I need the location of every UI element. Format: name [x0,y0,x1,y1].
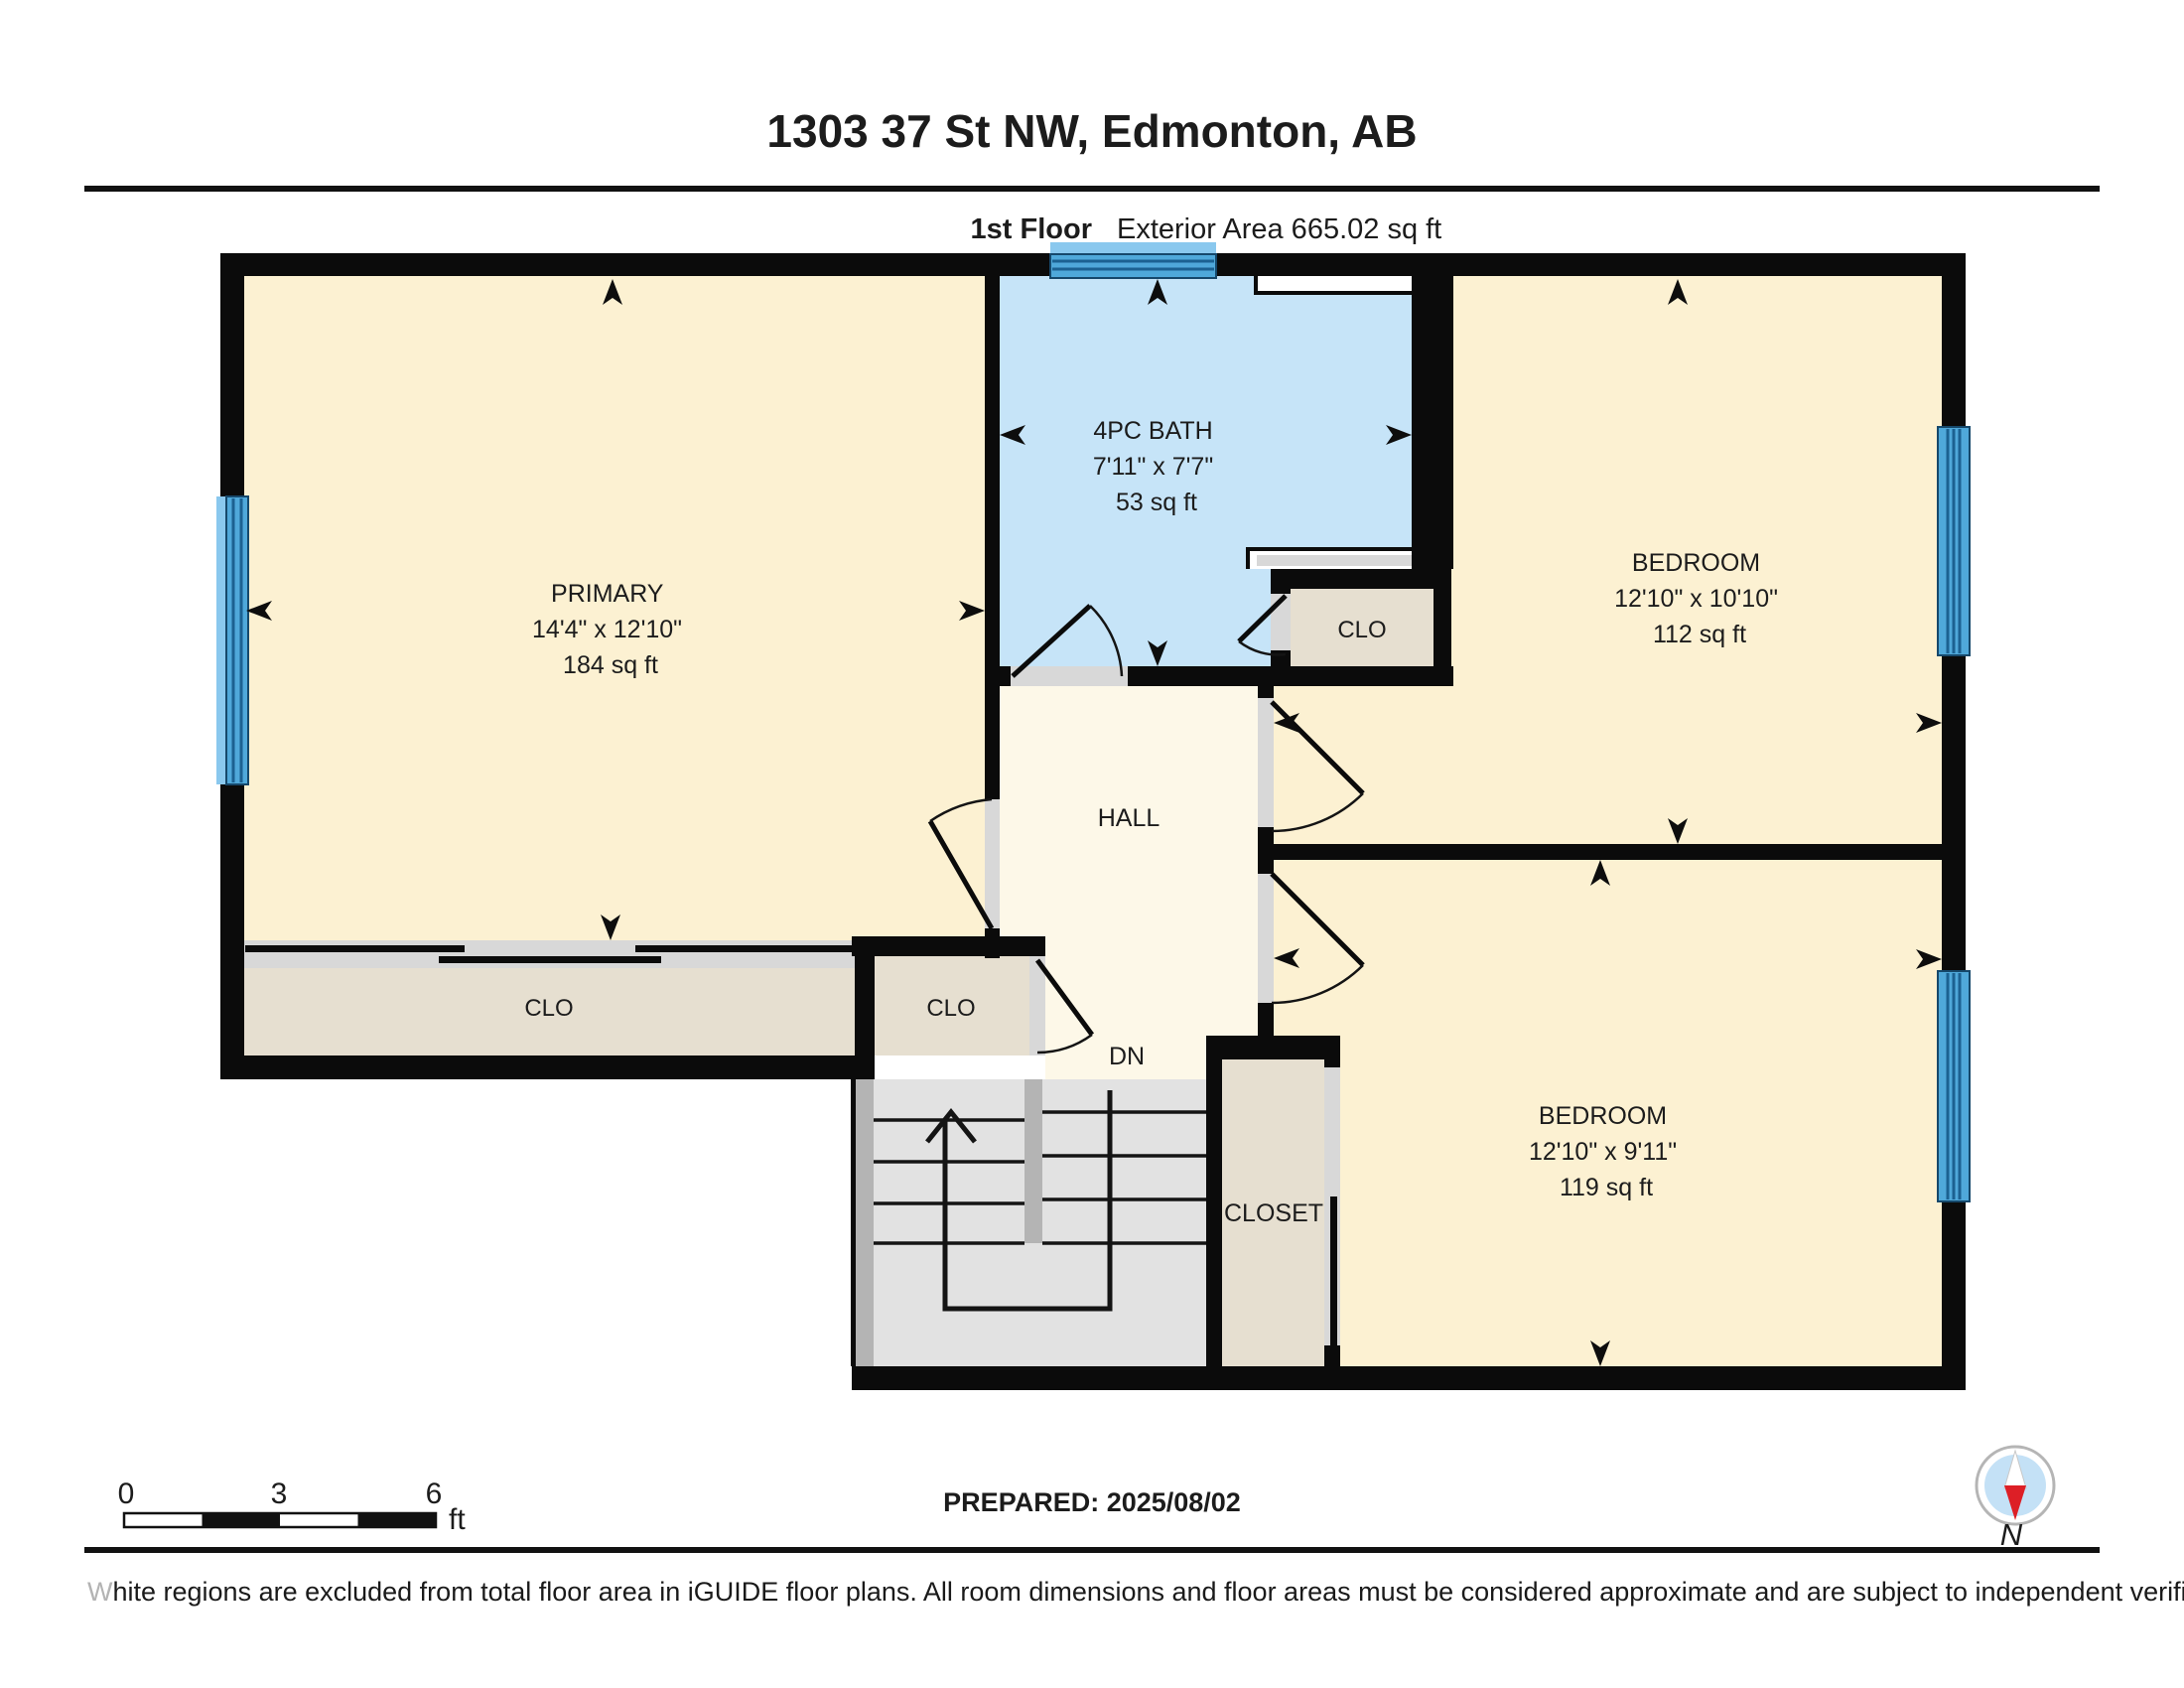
wall-segment [985,666,1011,686]
stairs-left-line [851,1079,856,1366]
primary-door-opening [985,799,1000,928]
closet-hall-label: CLO [926,995,975,1022]
sliding-panel [245,945,465,952]
window-outer [216,496,226,784]
header-divider [84,186,2100,192]
stairs-down-label: DN [1109,1043,1145,1070]
prepared-date: PREPARED: 2025/08/02 [943,1487,1241,1517]
niche-shelf [1257,555,1412,566]
primary-window [216,496,248,784]
stairs-center-stringer [1024,1079,1042,1243]
wall-segment [852,1366,1966,1390]
primary-closet-sliding-door [244,940,855,968]
closet-bath-label: CLO [1337,617,1386,643]
niche-edge [1246,547,1412,551]
disclaimer-text: White regions are excluded from total fl… [87,1577,2184,1607]
bath-niche-top [1254,276,1412,295]
wall-segment [1258,844,1942,860]
scale-tick-6: 6 [426,1477,443,1510]
page-title: 1303 37 St NW, Edmonton, AB [766,105,1417,157]
closet-bedroom-label: CLOSET [1224,1199,1323,1227]
wall-segment [1324,1036,1340,1067]
wall-segment [220,1055,875,1079]
scale-tick-0: 0 [118,1477,135,1510]
hall-label: HALL [1098,804,1160,832]
scale-bar-segment [358,1513,437,1527]
wall-segment [855,936,875,1055]
primary-floor [244,276,985,940]
window-glass [226,496,248,784]
compass: N [1977,1447,2054,1552]
bedroom-bottom-door-opening [1258,874,1274,1003]
bath-window [1050,242,1216,278]
closet-primary-label: CLO [524,995,573,1022]
sliding-panel [439,956,661,963]
scale-unit: ft [449,1503,466,1536]
stairs-left-stringer [856,1079,874,1366]
niche-edge [1258,291,1412,295]
wall-segment [1258,686,1274,698]
floor-label: 1st Floor [971,213,1092,245]
compass-north-label: N [2000,1517,2023,1552]
bedroom-closet-sliding-door [1324,1059,1340,1366]
niche-edge [1254,276,1258,295]
wall-segment [1942,253,1966,1390]
window-glass [1050,254,1216,278]
wall-segment [1206,1036,1222,1366]
floorplan-canvas: 1303 37 St NW, Edmonton, AB 1st Floor Ex… [0,0,2184,1688]
bedroom-bottom-window [1938,971,1970,1201]
floorplan-page: 1303 37 St NW, Edmonton, AB 1st Floor Ex… [0,0,2184,1688]
wall-segment [1271,569,1451,589]
bedroom-top-window [1938,427,1970,655]
niche-edge [1246,547,1250,569]
staircase [851,1079,1206,1366]
footer-divider [84,1547,2100,1553]
wall-segment [1324,1345,1340,1366]
wall-segment [1128,666,1453,686]
wall-segment [1258,1003,1274,1036]
bath-door-opening [1011,666,1128,686]
wall-segment [985,276,1000,799]
wall-segment [1271,589,1291,594]
scale-tick-3: 3 [271,1477,288,1510]
wall-segment [1412,253,1453,569]
wall-segment [852,936,1045,956]
exterior-area: Exterior Area 665.02 sq ft [1117,213,1441,245]
bath-niche-bottom [1246,547,1412,569]
bedroom-top-door-opening [1258,698,1274,827]
wall-segment [1206,1036,1340,1059]
scale-bar: 0 3 6 ft [118,1477,467,1536]
sliding-track [244,940,855,968]
sliding-panel [635,945,855,952]
sliding-panel [1330,1196,1337,1366]
niche-white [1258,276,1412,291]
window-outer [1050,242,1216,254]
scale-bar-segment [203,1513,281,1527]
wall-segment [1271,650,1291,666]
